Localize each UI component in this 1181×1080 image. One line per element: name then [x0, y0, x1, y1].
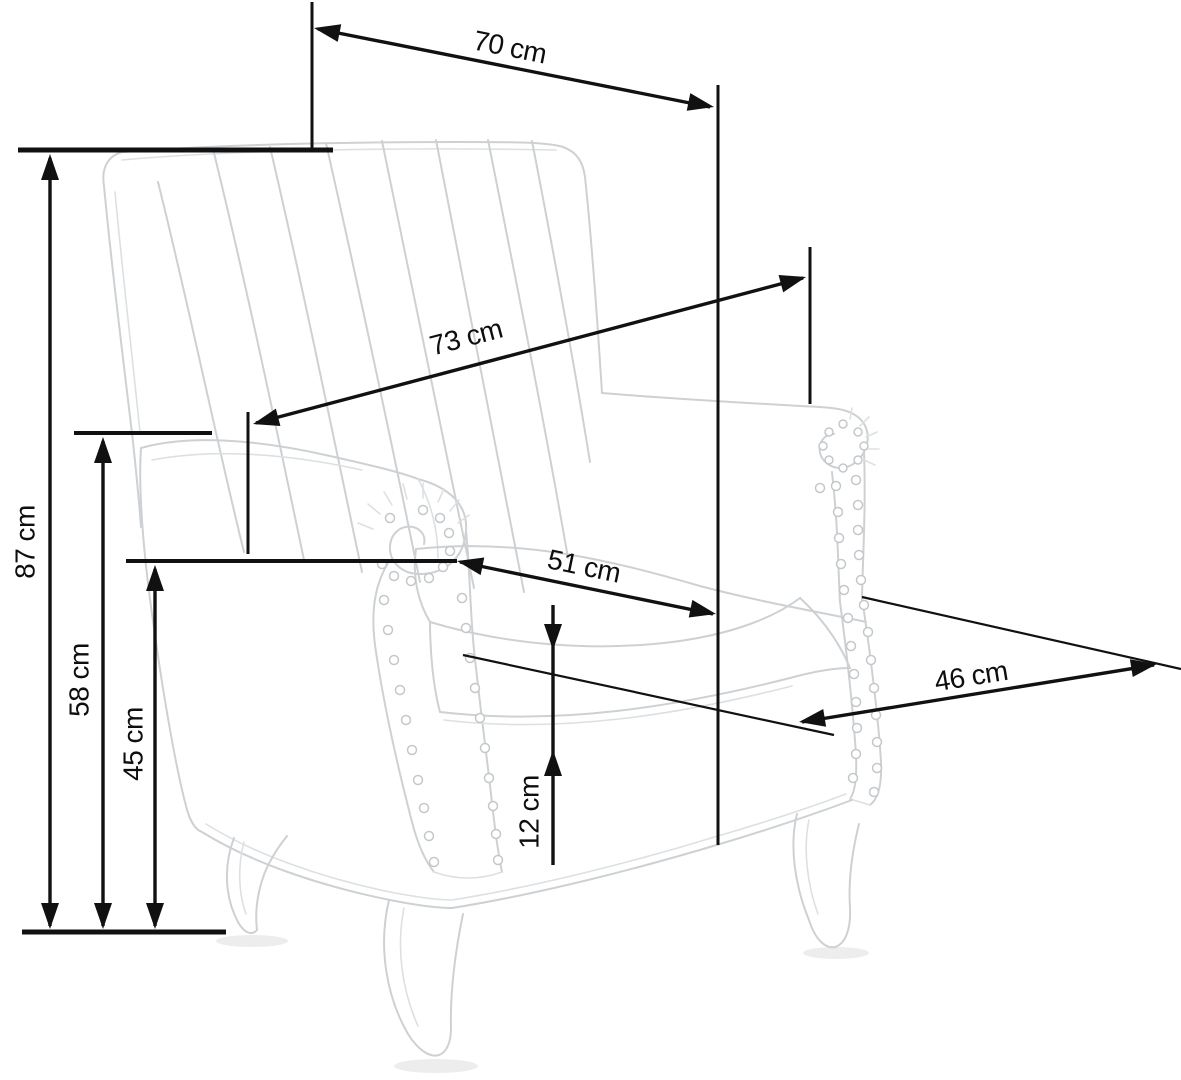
arrowhead [687, 93, 716, 116]
left-scroll-pleats [358, 483, 469, 529]
seat-cushion [415, 546, 866, 724]
dimension-seat-height: 45 cm [118, 561, 458, 929]
arrowhead [544, 750, 562, 776]
foot-shadow [803, 947, 869, 959]
left-armrest [140, 440, 502, 878]
armchair-dimension-diagram: 70 cm 73 cm 87 cm 58 cm 45 cm [0, 0, 1181, 1080]
dimension-label: 45 cm [118, 707, 149, 781]
dimension-overall-height: 87 cm [10, 150, 334, 932]
arrowhead [41, 154, 59, 180]
arrowhead [94, 903, 112, 929]
arrowhead [544, 624, 562, 650]
arrowhead [41, 903, 59, 929]
dimension-backrest-diagonal: 73 cm [248, 247, 810, 554]
dimension-seat-width: 51 cm [455, 543, 718, 622]
dimension-overall-width: 70 cm [312, 2, 718, 845]
backrest-channel-seams [158, 140, 590, 592]
arrowhead [146, 565, 164, 591]
dimension-label: 73 cm [426, 313, 505, 362]
arrowhead [146, 903, 164, 929]
extension-line [463, 655, 834, 735]
dimension-label: 12 cm [514, 775, 545, 849]
dimension-label: 58 cm [64, 643, 95, 717]
extension-line [862, 597, 1181, 669]
arrowhead [312, 19, 341, 42]
dimension-armrest-height: 58 cm [64, 433, 213, 929]
foot-shadow [394, 1059, 478, 1073]
dimension-label: 87 cm [10, 505, 41, 579]
arrowhead [779, 268, 809, 292]
cabriole-legs [227, 814, 859, 1056]
arrowhead [94, 437, 112, 463]
arrowhead [689, 600, 718, 623]
foot-shadow [216, 935, 288, 947]
dimension-diagram-page: 70 cm 73 cm 87 cm 58 cm 45 cm [0, 0, 1181, 1080]
